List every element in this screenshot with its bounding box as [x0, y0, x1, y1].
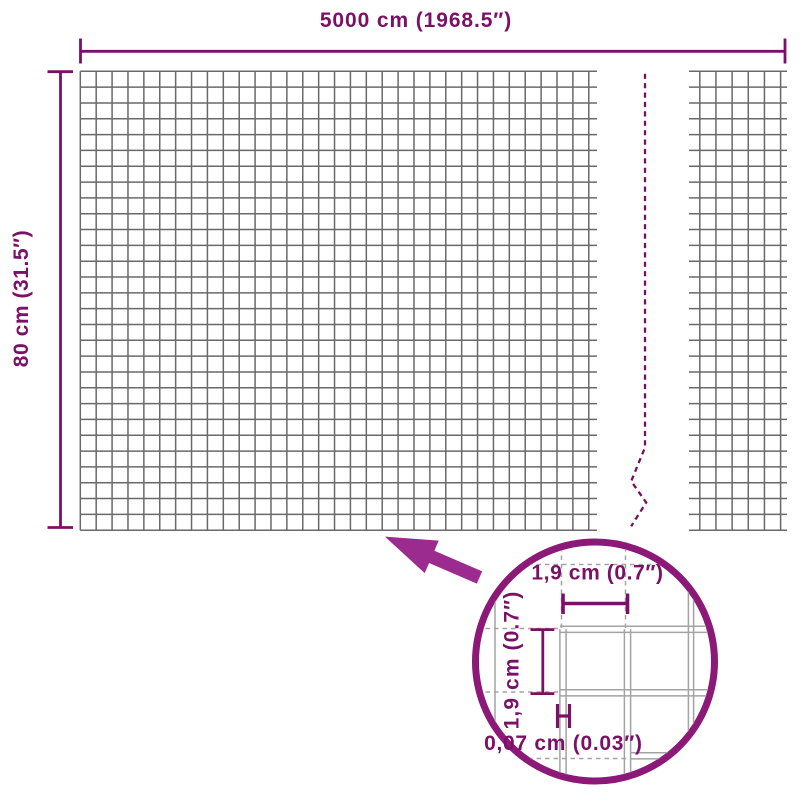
svg-text:1,9 cm (0.7″): 1,9 cm (0.7″) [531, 562, 663, 585]
svg-text:1,9 cm (0.7″): 1,9 cm (0.7″) [501, 591, 524, 730]
svg-text:5000 cm (1968.5″): 5000 cm (1968.5″) [320, 9, 512, 32]
svg-text:0,07 cm (0.03″): 0,07 cm (0.03″) [484, 732, 643, 755]
svg-text:80 cm (31.5″): 80 cm (31.5″) [10, 230, 33, 367]
